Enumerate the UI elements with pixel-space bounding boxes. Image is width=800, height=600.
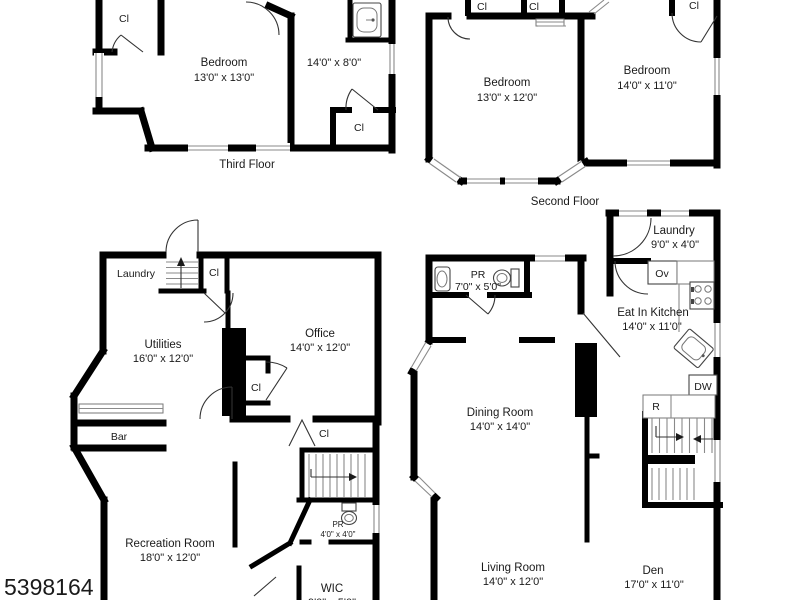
- door-leaf: [254, 577, 276, 596]
- sink-icon: [353, 3, 381, 37]
- closet-shelf: [536, 19, 566, 26]
- third-floor-plan: Cl Bedroom 13'0" x 13'0" 14'0" x 8'0" Cl…: [94, 0, 397, 171]
- floor-caption: Second Floor: [531, 196, 600, 208]
- floor-plan-page: Cl Bedroom 13'0" x 13'0" 14'0" x 8'0" Cl…: [0, 0, 800, 600]
- room-label: Den: [642, 565, 663, 577]
- room-dims: 14'0" x 14'0": [470, 421, 530, 433]
- room-dims: 16'0" x 12'0": [133, 353, 193, 365]
- stove-icon: [690, 282, 714, 309]
- counter: [677, 261, 714, 284]
- closet-label: Cl: [119, 13, 129, 25]
- room-dims: 14'0" x 11'0": [617, 80, 677, 92]
- room-dims: 9'0" x 4'0": [651, 239, 699, 251]
- stair-hatch: [589, 0, 609, 14]
- room-dims: 13'0" x 12'0": [477, 92, 537, 104]
- room-label: Dining Room: [467, 407, 533, 419]
- room-label: Utilities: [144, 339, 181, 351]
- room-dims: 18'0" x 12'0": [140, 552, 200, 564]
- closet-label: Cl: [689, 0, 699, 12]
- door-arc: [166, 220, 198, 252]
- bifold-door: [289, 420, 315, 446]
- door-arc: [672, 13, 717, 42]
- room-dims: 14'0" x 8'0": [307, 57, 361, 69]
- appliance-label: Ov: [655, 268, 669, 280]
- room-dims: 7'0" x 5'0": [455, 281, 501, 293]
- door-arc: [613, 218, 651, 256]
- living-den-divider: [587, 417, 597, 540]
- room-label: Bedroom: [201, 57, 248, 69]
- photo-id: 5398164: [4, 574, 94, 600]
- basement-plan: Laundry Cl Utilities 16'0" x 12'0" Offic…: [74, 220, 381, 600]
- room-label: Laundry: [117, 268, 156, 280]
- door-arc: [615, 261, 648, 294]
- staircase-up: [166, 257, 198, 288]
- appliance-label: DW: [694, 381, 712, 393]
- window: [411, 208, 722, 497]
- closet-label: Cl: [354, 122, 364, 134]
- room-label: Bar: [111, 431, 128, 443]
- room-label: Living Room: [481, 562, 545, 574]
- room-label: Office: [305, 328, 335, 340]
- closet-label: Cl: [209, 267, 219, 279]
- room-label: PR: [471, 269, 486, 281]
- closet-label: Cl: [529, 1, 539, 13]
- room-label: WIC: [321, 583, 343, 595]
- floor-caption: Third Floor: [219, 159, 275, 171]
- door-arc: [346, 89, 378, 110]
- room-dims: 17'0" x 11'0": [624, 579, 684, 591]
- second-floor-closet-walls: [468, 0, 672, 13]
- room-label: Laundry: [653, 225, 695, 237]
- first-floor-plan: Laundry 9'0" x 4'0" Ov PR 7'0" x 5'0" Ea…: [411, 208, 722, 600]
- room-label: PR: [332, 520, 343, 529]
- chimney: [222, 328, 246, 416]
- window: [372, 505, 381, 533]
- kitchen-sink-icon: [673, 329, 714, 369]
- room-dims: 14'0" x 12'0": [290, 342, 350, 354]
- room-dims: 13'0" x 13'0": [194, 72, 254, 84]
- closet-label: Cl: [319, 428, 329, 440]
- chimney: [575, 343, 597, 417]
- sink-icon: [435, 267, 450, 291]
- toilet-icon: [342, 503, 357, 525]
- room-dims: 14'0" x 12'0": [483, 576, 543, 588]
- floor-plan-image: Cl Bedroom 13'0" x 13'0" 14'0" x 8'0" Cl…: [0, 0, 800, 600]
- room-label: Eat In Kitchen: [617, 307, 689, 319]
- closet-label: Cl: [477, 1, 487, 13]
- staircase: [647, 418, 713, 500]
- room-label: Bedroom: [624, 65, 671, 77]
- room-dims: 4'0" x 4'0": [321, 530, 356, 539]
- second-floor-plan: Cl Cl Cl Bedroom 13'0" x 12'0" Bedroom 1…: [429, 0, 722, 208]
- closet-label: Cl: [251, 382, 261, 394]
- bar-counter: [79, 404, 163, 413]
- room-dims: 14'0" x 11'0": [622, 321, 682, 333]
- staircase-down: [309, 454, 365, 497]
- room-label: Bedroom: [484, 77, 531, 89]
- window: [429, 58, 722, 186]
- appliance-label: R: [652, 401, 660, 413]
- room-label: Recreation Room: [125, 538, 214, 550]
- door-arc: [448, 17, 470, 39]
